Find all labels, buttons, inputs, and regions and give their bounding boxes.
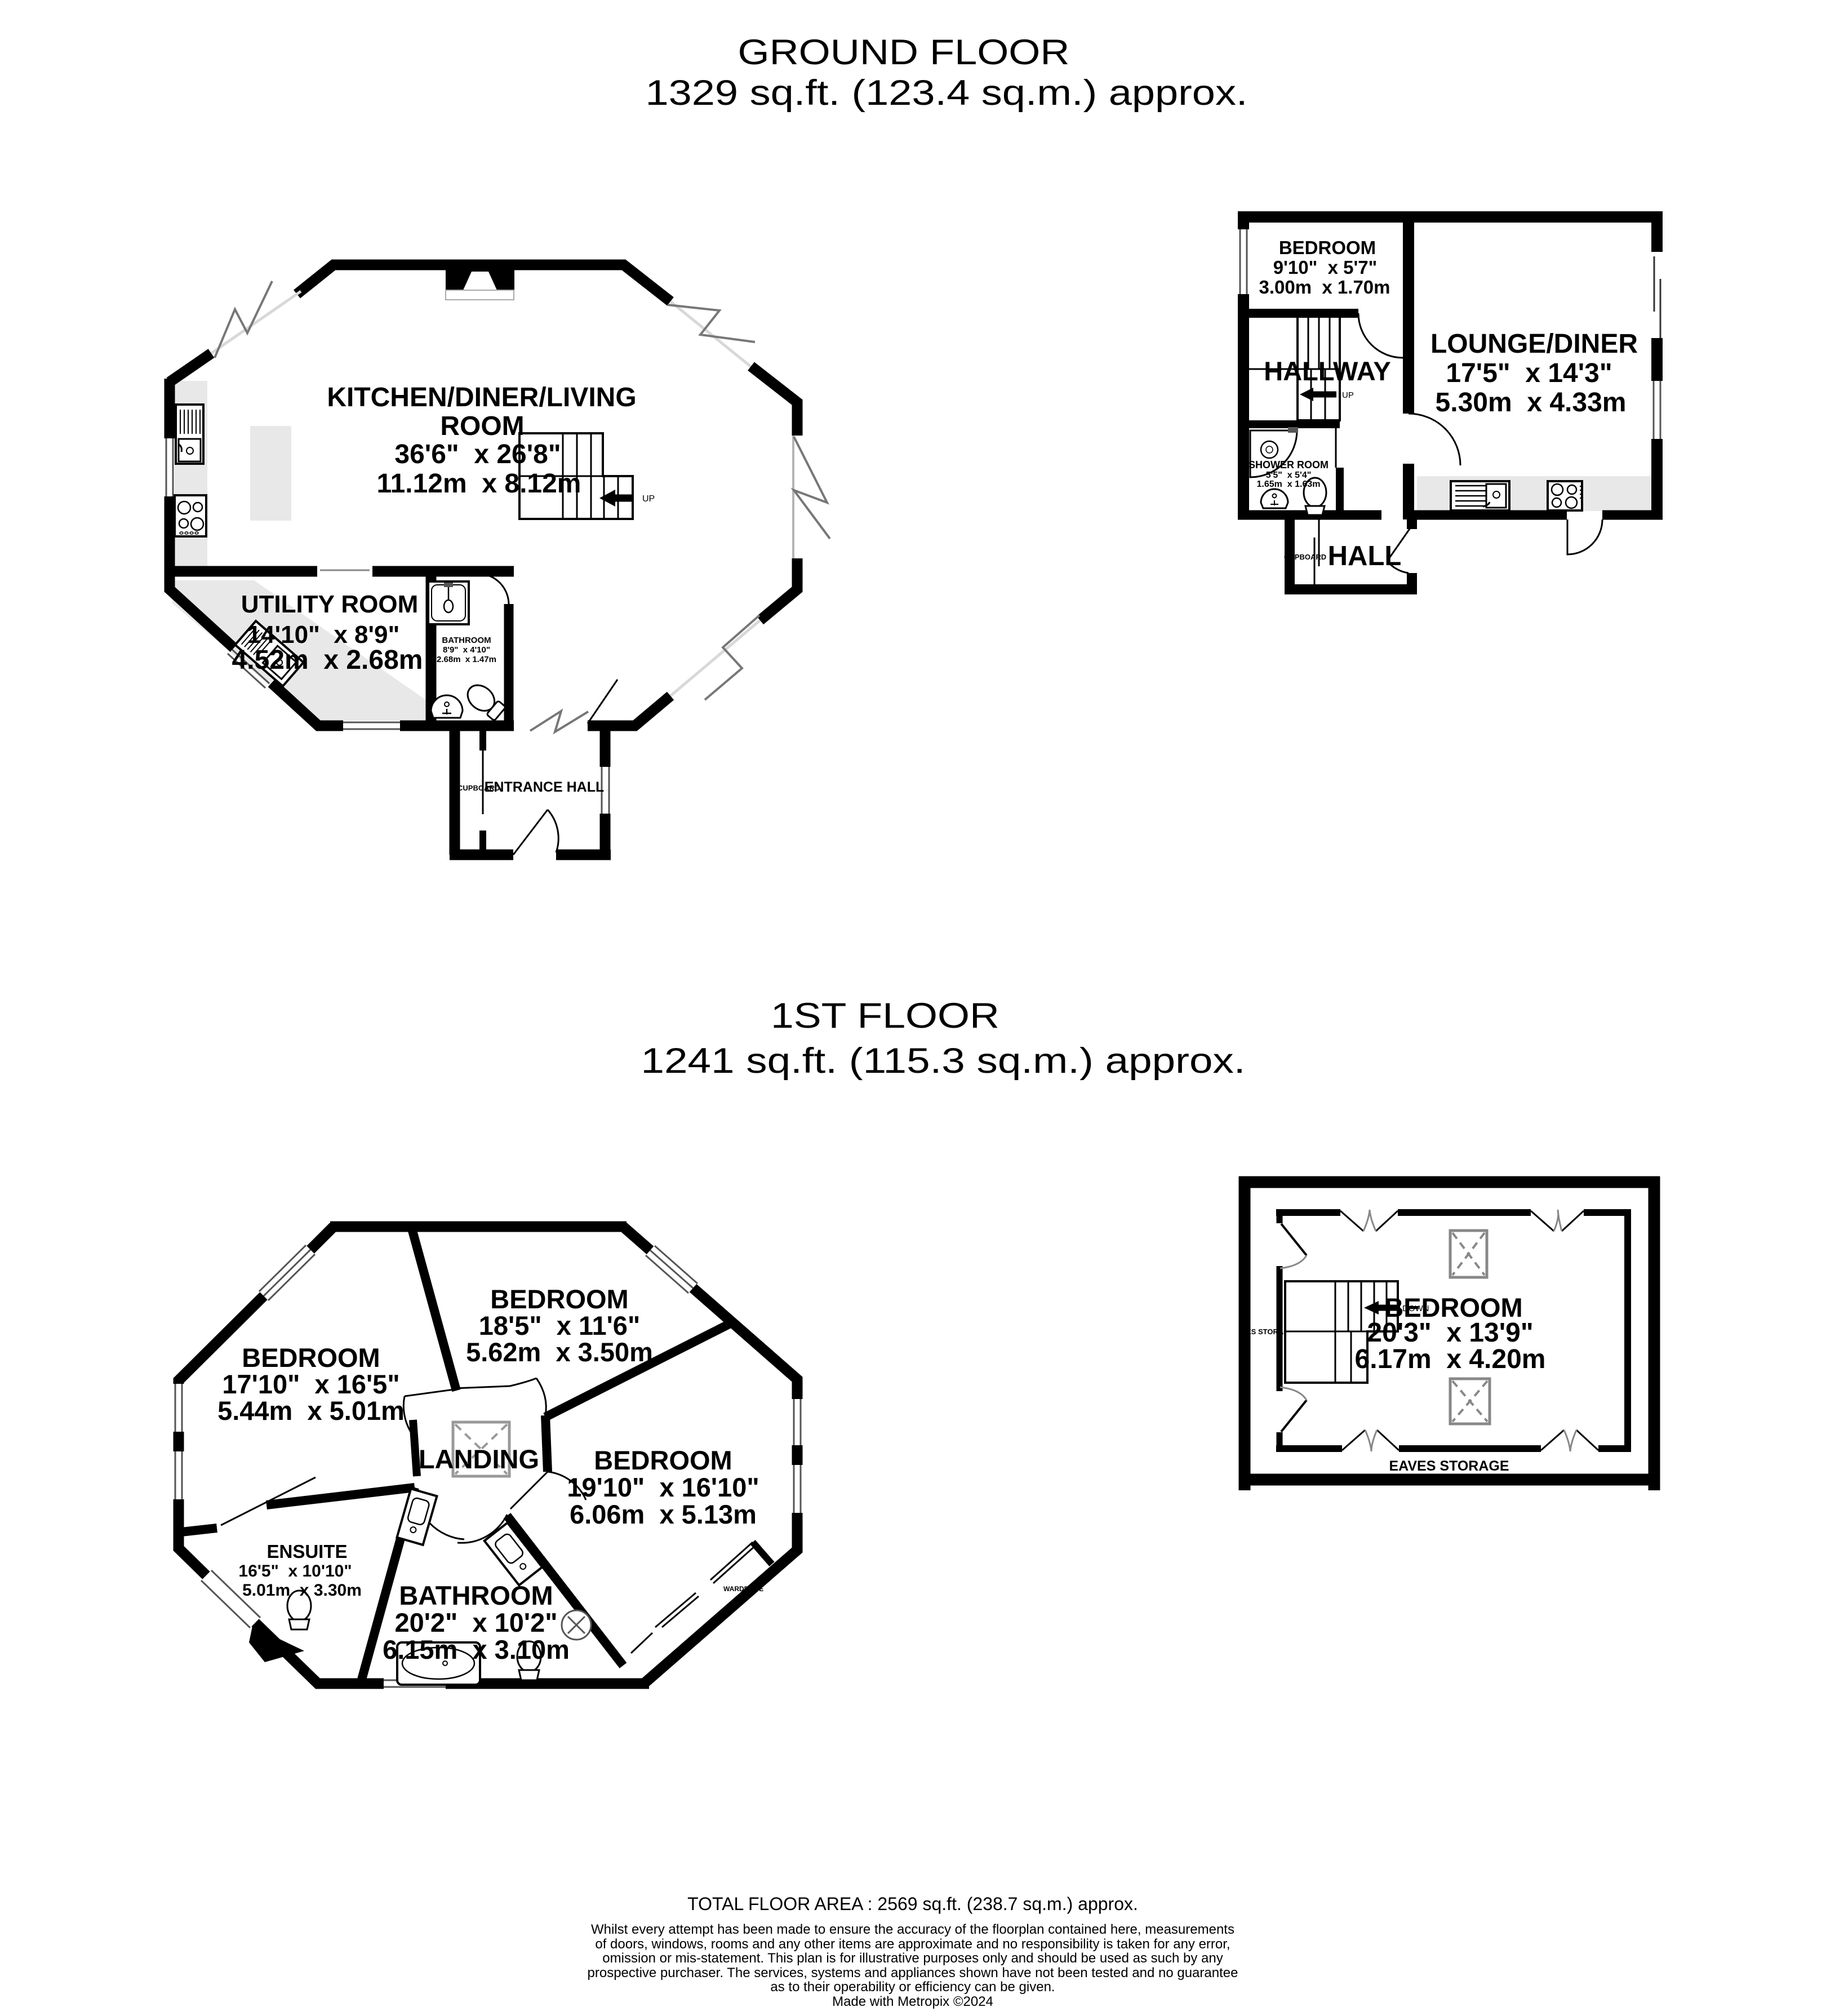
svg-text:1329 sq.ft. (123.4 sq.m.) appr: 1329 sq.ft. (123.4 sq.m.) approx.: [646, 73, 1248, 113]
svg-text:18'5" x 11'6": 18'5" x 11'6": [479, 1311, 640, 1340]
svg-text:1.65m x 1.63m: 1.65m x 1.63m: [1257, 479, 1321, 489]
svg-text:LOUNGE/DINER: LOUNGE/DINER: [1430, 329, 1638, 359]
svg-text:14'10" x 8'9": 14'10" x 8'9": [247, 621, 400, 649]
svg-text:11.12m x 8.12m: 11.12m x 8.12m: [377, 469, 581, 499]
svg-text:36'6" x 26'8": 36'6" x 26'8": [394, 439, 561, 469]
svg-text:UP: UP: [642, 494, 655, 504]
svg-text:TOTAL FLOOR AREA : 2569 sq.ft.: TOTAL FLOOR AREA : 2569 sq.ft. (238.7 sq…: [687, 1894, 1138, 1914]
svg-text:9'10" x 5'7": 9'10" x 5'7": [1273, 257, 1378, 278]
svg-text:3.00m x 1.70m: 3.00m x 1.70m: [1259, 277, 1390, 297]
svg-text:EAVES STORAGE: EAVES STORAGE: [1389, 1458, 1509, 1474]
svg-text:4.52m x 2.68m: 4.52m x 2.68m: [232, 645, 423, 675]
svg-text:GROUND FLOOR: GROUND FLOOR: [738, 33, 1070, 72]
svg-text:20'2" x 10'2": 20'2" x 10'2": [394, 1608, 557, 1637]
svg-text:BEDROOM: BEDROOM: [1279, 237, 1376, 258]
svg-text:prospective purchaser. The ser: prospective purchaser. The services, sys…: [588, 1965, 1238, 1981]
svg-text:HALL: HALL: [1328, 541, 1402, 571]
svg-text:ENTRANCE HALL: ENTRANCE HALL: [485, 779, 605, 795]
svg-text:BEDROOM: BEDROOM: [490, 1284, 628, 1314]
svg-text:omission or mis-statement. Thi: omission or mis-statement. This plan is …: [602, 1951, 1223, 1966]
svg-text:16'5" x 10'10": 16'5" x 10'10": [238, 1562, 352, 1580]
svg-text:UP: UP: [1342, 390, 1354, 400]
svg-text:SHOWER ROOM: SHOWER ROOM: [1249, 459, 1329, 470]
svg-text:19'10" x 16'10": 19'10" x 16'10": [567, 1472, 759, 1502]
svg-text:17'10" x 16'5": 17'10" x 16'5": [222, 1369, 399, 1399]
svg-text:5.01m x 3.30m: 5.01m x 3.30m: [242, 1581, 362, 1600]
svg-text:UTILITY ROOM: UTILITY ROOM: [241, 590, 419, 618]
svg-text:Whilst every attempt has been: Whilst every attempt has been made to en…: [591, 1922, 1234, 1937]
svg-text:HALLWAY: HALLWAY: [1264, 356, 1390, 386]
svg-text:20'3" x 13'9": 20'3" x 13'9": [1367, 1318, 1533, 1348]
svg-text:5.62m x 3.50m: 5.62m x 3.50m: [466, 1337, 653, 1367]
svg-text:CUPBOARD: CUPBOARD: [1284, 553, 1326, 561]
svg-text:BATHROOM: BATHROOM: [399, 1580, 553, 1610]
svg-text:6.17m x 4.20m: 6.17m x 4.20m: [1355, 1344, 1546, 1374]
svg-text:LANDING: LANDING: [419, 1444, 539, 1474]
svg-text:2.68m x 1.47m: 2.68m x 1.47m: [437, 655, 496, 664]
svg-text:KITCHEN/DINER/LIVING: KITCHEN/DINER/LIVING: [327, 383, 636, 412]
svg-text:as to their operability or eff: as to their operability or efficiency ca…: [770, 1979, 1055, 1995]
svg-text:8'9" x 4'10": 8'9" x 4'10": [443, 645, 490, 655]
svg-text:6.06m x 5.13m: 6.06m x 5.13m: [570, 1499, 757, 1529]
svg-text:1241 sq.ft. (115.3 sq.m.) appr: 1241 sq.ft. (115.3 sq.m.) approx.: [641, 1041, 1246, 1081]
svg-text:ROOM: ROOM: [440, 411, 524, 441]
svg-text:WARDROBE: WARDROBE: [723, 1585, 763, 1593]
svg-text:BATHROOM: BATHROOM: [442, 636, 491, 645]
svg-text:17'5" x 14'3": 17'5" x 14'3": [1446, 358, 1612, 388]
svg-text:5.30m x 4.33m: 5.30m x 4.33m: [1436, 388, 1627, 418]
svg-text:BEDROOM: BEDROOM: [594, 1445, 732, 1475]
svg-text:BEDROOM: BEDROOM: [242, 1343, 380, 1373]
svg-text:5'5" x 5'4": 5'5" x 5'4": [1266, 470, 1312, 480]
svg-text:ENSUITE: ENSUITE: [266, 1541, 347, 1562]
svg-text:of doors, windows, rooms and a: of doors, windows, rooms and any other i…: [595, 1937, 1230, 1952]
svg-text:6.15m x 3.10m: 6.15m x 3.10m: [383, 1635, 570, 1664]
svg-text:Made with Metropix ©2024: Made with Metropix ©2024: [832, 1994, 993, 2009]
svg-text:1ST FLOOR: 1ST FLOOR: [771, 996, 999, 1036]
svg-text:5.44m x 5.01m: 5.44m x 5.01m: [217, 1396, 405, 1426]
